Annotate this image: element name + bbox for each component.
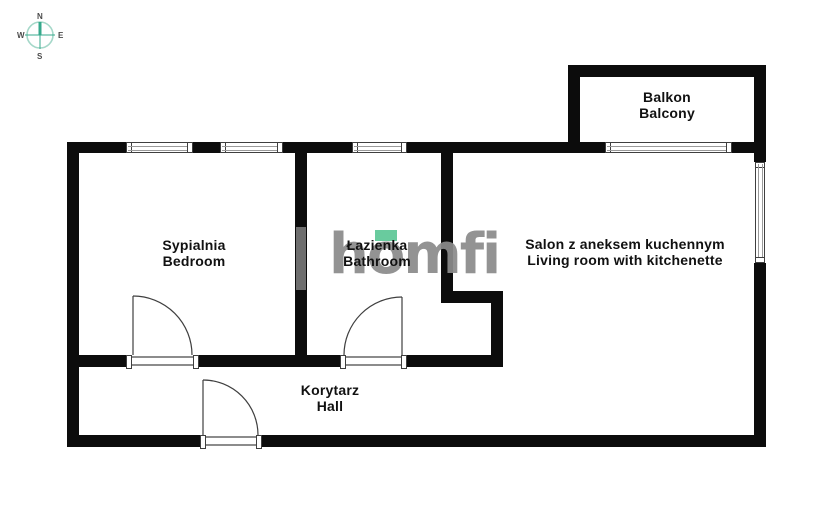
door-arc-bedroom: [133, 296, 192, 355]
window-bedroom-1: [126, 142, 193, 153]
window-pane: [607, 146, 730, 151]
balcony-name-pl: Balkon: [587, 89, 747, 105]
wall-balcony-top: [568, 65, 766, 77]
compass-label-east: E: [58, 31, 64, 40]
door-arc-entrance: [203, 380, 258, 435]
wall-bottom-segment: [260, 435, 766, 447]
bathroom-name-en: Bathroom: [307, 253, 447, 269]
wall-right-lower: [754, 263, 766, 447]
window-balcony-door: [605, 142, 732, 153]
window-pane: [354, 146, 405, 151]
label-living-room: Salon z aneksem kuchennym Living room wi…: [475, 236, 775, 268]
door-arc-bathroom: [344, 297, 402, 355]
label-bathroom: Łazienka Bathroom: [307, 237, 447, 269]
floor-plan: N E S W h: [0, 0, 829, 516]
living-room-name-pl: Salon z aneksem kuchennym: [475, 236, 775, 252]
bedroom-name-pl: Sypialnia: [104, 237, 284, 253]
window-bathroom: [352, 142, 407, 153]
window-pane: [128, 146, 191, 151]
label-balcony: Balkon Balcony: [587, 89, 747, 121]
living-room-name-en: Living room with kitchenette: [475, 252, 775, 268]
window-pane: [222, 146, 281, 151]
door-sill-bathroom: [342, 356, 405, 366]
hall-name-en: Hall: [260, 398, 400, 414]
wall-hall-top-segment: [197, 355, 342, 367]
label-bedroom: Sypialnia Bedroom: [104, 237, 284, 269]
wall-top-segment: [67, 142, 126, 153]
balcony-name-en: Balcony: [587, 105, 747, 121]
compass-label-west: W: [17, 31, 25, 40]
wall-closet-right: [491, 291, 503, 367]
bedroom-name-en: Bedroom: [104, 253, 284, 269]
label-hall: Korytarz Hall: [260, 382, 400, 414]
wall-bottom-segment: [67, 435, 202, 447]
compass-label-south: S: [37, 52, 43, 61]
hall-name-pl: Korytarz: [260, 382, 400, 398]
wall-left: [67, 142, 79, 447]
bathroom-name-pl: Łazienka: [307, 237, 447, 253]
door-sill-entrance: [202, 436, 260, 446]
window-bedroom-2: [220, 142, 283, 153]
wall-top-segment: [283, 142, 352, 153]
wall-hall-top-segment: [405, 355, 503, 367]
compass-rose: N E S W: [10, 6, 72, 66]
wall-balcony-right: [754, 65, 766, 162]
wall-duct-strip: [296, 227, 306, 290]
compass-label-north: N: [37, 12, 43, 21]
wall-balcony-left: [568, 65, 580, 153]
wall-top-segment: [193, 142, 220, 153]
door-sill-bedroom: [128, 356, 197, 366]
wall-hall-top-segment: [67, 355, 128, 367]
